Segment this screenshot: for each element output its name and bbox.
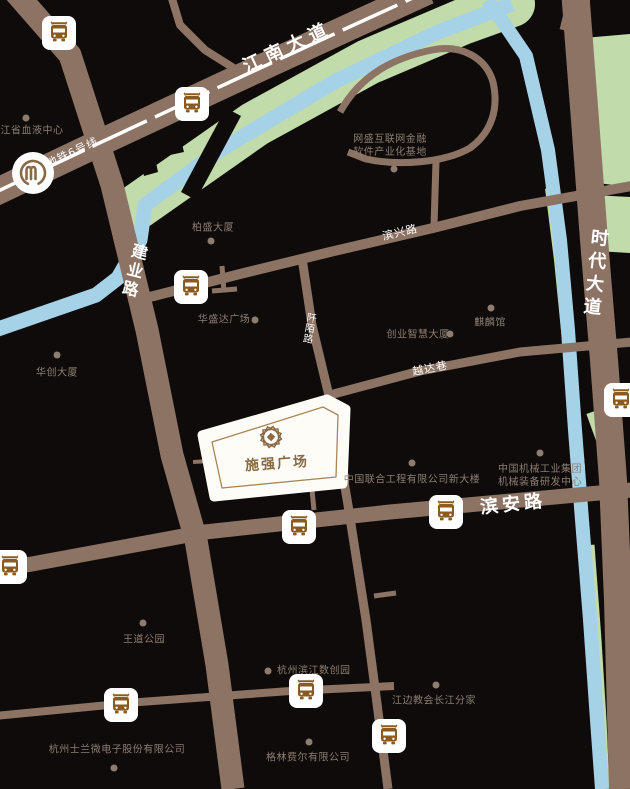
poi-dot: [111, 765, 118, 772]
poi-huachuang-building: 华创大厦: [36, 367, 78, 380]
shiqiang-emblem-icon: [257, 423, 285, 451]
poi-dot: [54, 352, 61, 359]
bus-stop-icon: [0, 549, 28, 585]
bus-stop-icon: [174, 86, 210, 122]
poi-zhejiang-blood-center: 浙江省血液中心: [0, 125, 64, 138]
poi-qilin-hall: 麒麟馆: [474, 317, 506, 330]
map-canvas: 江南大道 地铁6号线 建业路 时代大道 滨兴路 滨安路 越达巷 阡陌路 浙江省血…: [0, 0, 630, 789]
poi-huashengda-plaza: 华盛达广场: [198, 314, 251, 327]
poi-dot: [306, 739, 313, 746]
poi-wangdao-park: 王道公园: [123, 634, 165, 647]
bus-stop-icon: [371, 718, 407, 754]
poi-dot: [433, 682, 440, 689]
bus-stop-icon: [603, 382, 630, 418]
metro-station-icon: [11, 151, 55, 195]
bus-stop-icon: [103, 687, 139, 723]
poi-dot: [488, 305, 495, 312]
poi-baisheng-building: 柏盛大厦: [192, 222, 234, 235]
road-yueda: [326, 342, 630, 396]
poi-riverside-church: 江边教会长江分家: [392, 695, 476, 708]
shiqiang-plaza-logo: [257, 423, 285, 451]
poi-greenfield-co: 格林费尔有限公司: [266, 752, 350, 765]
bus-stop-icon: [173, 269, 209, 305]
poi-dot: [140, 620, 147, 627]
bus-stop-icon: [281, 509, 317, 545]
poi-dot: [252, 317, 259, 324]
bus-stop-icon: [41, 15, 77, 51]
poi-dot: [265, 668, 272, 675]
poi-dot: [537, 450, 544, 457]
bus-stop-icon: [428, 494, 464, 530]
poi-china-united-engineering: 中国联合工程有限公司新大楼: [344, 474, 481, 487]
poi-dot: [391, 166, 398, 173]
poi-silan-microelectronics: 杭州士兰微电子股份有限公司: [49, 744, 186, 757]
poi-sinomach-rd-center: 中国机械工业集团机械装备研发中心: [498, 463, 582, 489]
poi-dot: [208, 238, 215, 245]
bus-stop-icon: [288, 673, 324, 709]
poi-dot: [23, 115, 30, 122]
poi-dot: [409, 460, 416, 467]
poi-wangsheng-fintech-base: 网盛互联网金融软件产业化基地: [353, 133, 427, 159]
poi-chuangye-wisdom-building: 创业智慧大厦: [387, 329, 450, 342]
